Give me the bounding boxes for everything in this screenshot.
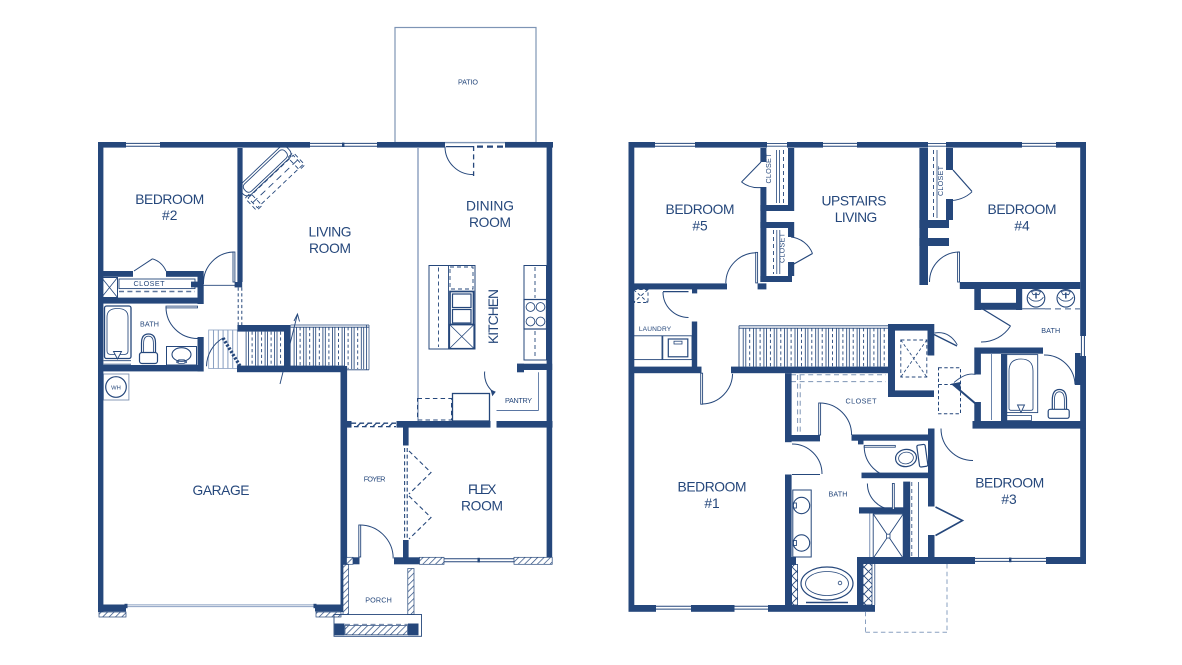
svg-text:BEDROOM: BEDROOM [678,480,747,495]
svg-text:CLOSET: CLOSET [764,153,773,184]
svg-text:PORCH: PORCH [365,596,392,605]
svg-text:FLEX: FLEX [468,482,496,497]
svg-text:WH: WH [111,385,121,391]
svg-text:LIVING: LIVING [835,210,878,225]
svg-text:PATIO: PATIO [458,78,478,87]
svg-text:CLOSET: CLOSET [134,279,166,288]
svg-text:LAUNDRY: LAUNDRY [639,326,672,333]
svg-text:CLOSET: CLOSET [778,232,787,263]
svg-text:CLOSET: CLOSET [936,165,945,196]
svg-text:BEDROOM: BEDROOM [135,192,204,207]
svg-text:DINING: DINING [466,199,514,214]
svg-text:FOYER: FOYER [364,475,386,484]
svg-text:#2: #2 [162,208,177,223]
svg-text:BEDROOM: BEDROOM [988,202,1057,217]
svg-text:#4: #4 [1014,218,1030,233]
svg-text:GARAGE: GARAGE [193,483,250,498]
svg-text:ROOM: ROOM [309,241,351,256]
svg-text:CLOSET: CLOSET [846,397,878,406]
svg-text:KITCHEN: KITCHEN [486,289,501,344]
svg-text:LIVING: LIVING [309,225,352,240]
svg-text:#3: #3 [1001,492,1017,507]
svg-text:PANTRY: PANTRY [505,396,532,405]
svg-text:ROOM: ROOM [469,215,511,230]
svg-text:#5: #5 [692,218,708,233]
svg-text:BEDROOM: BEDROOM [666,202,735,217]
svg-text:BEDROOM: BEDROOM [975,476,1044,491]
svg-text:BATH: BATH [140,320,159,329]
svg-text:#1: #1 [704,496,719,511]
svg-text:ROOM: ROOM [461,499,503,514]
svg-text:BATH: BATH [829,490,848,499]
svg-text:UPSTAIRS: UPSTAIRS [822,194,887,209]
svg-text:BATH: BATH [1041,326,1060,335]
